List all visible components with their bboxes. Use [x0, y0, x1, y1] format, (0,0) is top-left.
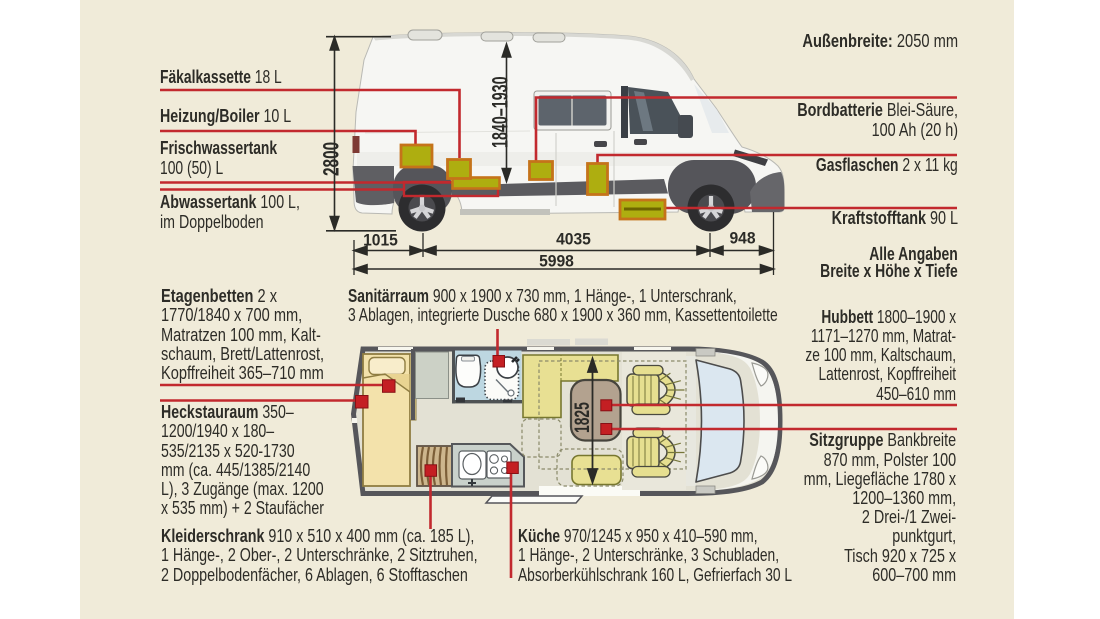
svg-text:2800: 2800: [320, 142, 344, 176]
svg-text:4035: 4035: [556, 230, 591, 249]
svg-text:948: 948: [729, 229, 755, 248]
svg-text:1840–1930: 1840–1930: [487, 76, 512, 148]
svg-text:5998: 5998: [539, 252, 574, 271]
svg-text:1015: 1015: [363, 231, 398, 250]
svg-text:1825: 1825: [570, 402, 594, 433]
